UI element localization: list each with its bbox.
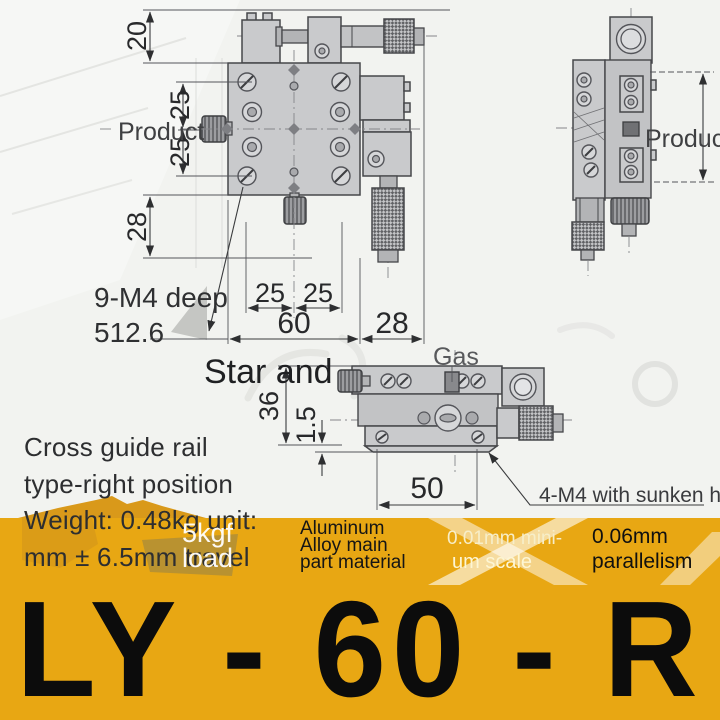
- description-line-2: type-right position: [24, 469, 233, 500]
- model-number-title: LY - 60 - R: [0, 570, 720, 720]
- dim-25-bottom-right-label: 25: [303, 278, 333, 308]
- product-label-right: Product: [645, 125, 720, 153]
- spec-scale-line-1: 0.01mm mini-: [447, 528, 562, 550]
- star-and-label: Star and: [204, 353, 333, 391]
- right-view-drawing: [556, 8, 656, 276]
- load-badge: 5kgf load: [182, 521, 233, 571]
- product-listing-image: 20 25 25 28 25 25 60 28 36 1.5 50 Produc…: [0, 0, 720, 720]
- description-line-1: Cross guide rail: [24, 432, 208, 463]
- spec-material-line-3: part material: [300, 554, 406, 571]
- dim-25-left-upper-label: 25: [165, 90, 195, 120]
- load-badge-line-2: load: [182, 546, 233, 571]
- hole-note-line-1: 9-M4 deep: [94, 282, 228, 313]
- spec-parallelism-line-1: 0.06mm: [592, 524, 692, 549]
- spec-parallelism: 0.06mm parallelism: [592, 524, 692, 574]
- dim-28-right-label: 28: [375, 307, 408, 340]
- spec-material: Aluminum Alloy main part material: [300, 520, 406, 571]
- dim-25-bottom-left-label: 25: [255, 278, 285, 308]
- hole-note-line-2: 512.6: [94, 317, 164, 348]
- dim-28-left-label: 28: [122, 212, 152, 242]
- dim-36-label: 36: [254, 391, 284, 421]
- gas-label: Gas: [433, 343, 479, 371]
- dim-60-label: 60: [277, 307, 310, 340]
- dim-20-label: 20: [122, 21, 152, 51]
- dim-50-label: 50: [410, 472, 443, 505]
- sunken-head-note: 4-M4 with sunken head_: [539, 484, 720, 507]
- product-label-left: Product: [118, 118, 204, 146]
- dim-1-5-label: 1.5: [291, 406, 321, 444]
